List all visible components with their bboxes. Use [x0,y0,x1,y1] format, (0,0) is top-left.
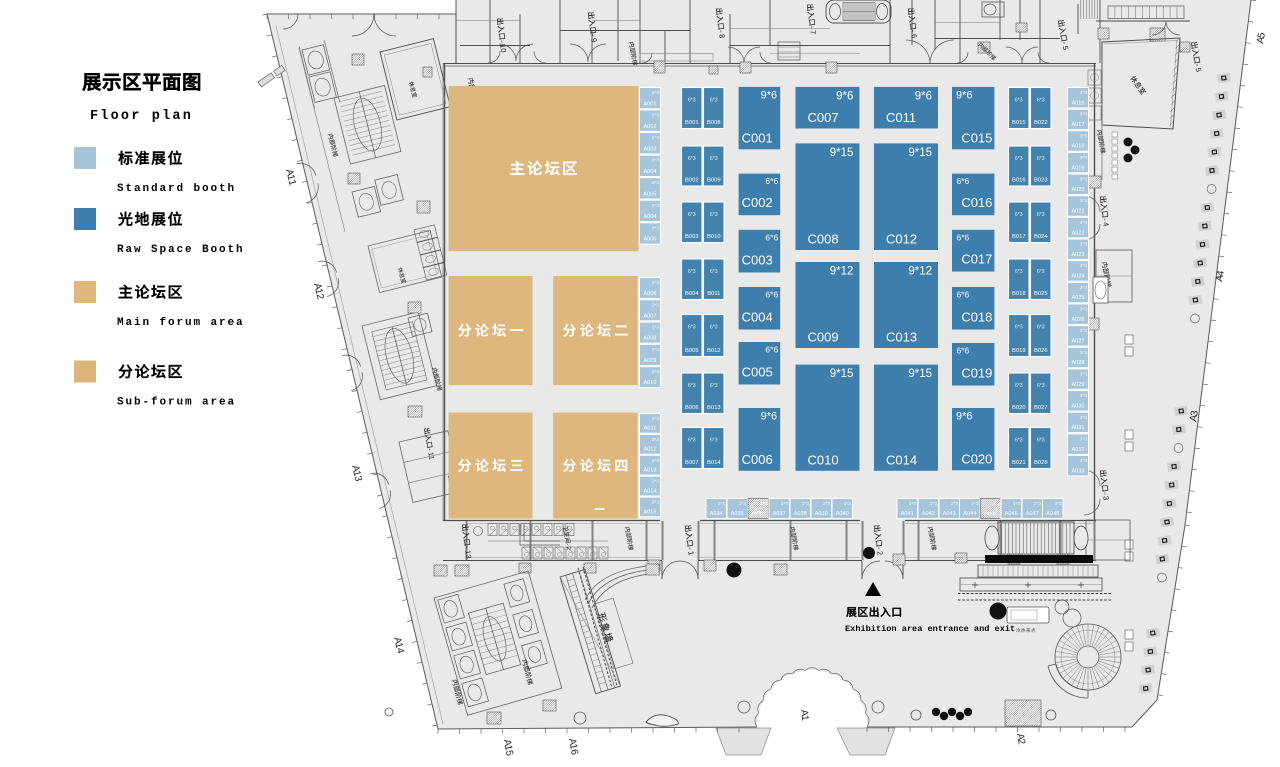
svg-text:B003: B003 [685,234,699,240]
svg-text:B015: B015 [1012,120,1026,126]
svg-text:6*3: 6*3 [1037,325,1045,331]
svg-text:3: 3 [352,475,364,483]
svg-text:4: 4 [1215,269,1227,277]
svg-text:B010: B010 [707,234,721,240]
svg-text:3*3: 3*3 [823,501,831,507]
svg-text:3*3: 3*3 [1080,133,1088,139]
svg-text:9*15: 9*15 [830,147,854,159]
svg-text:B005: B005 [685,348,699,354]
svg-text:3*3: 3*3 [652,347,660,353]
svg-text:6*3: 6*3 [710,383,718,389]
svg-text:C018: C018 [961,310,992,325]
svg-text:3*3: 3*3 [1080,155,1088,161]
svg-text:3*3: 3*3 [1080,328,1088,334]
svg-text:B011: B011 [707,291,720,297]
svg-text:3*3: 3*3 [1080,90,1088,96]
svg-text:3*3: 3*3 [652,158,660,164]
svg-text:3*3: 3*3 [1080,242,1088,248]
svg-text:A033: A033 [1071,468,1084,474]
svg-text:C002: C002 [742,195,773,210]
svg-text:9*6: 9*6 [836,90,853,102]
svg-text:B026: B026 [1034,348,1048,354]
svg-text:3*3: 3*3 [652,458,660,464]
svg-text:6*6: 6*6 [765,232,778,242]
svg-text:3*3: 3*3 [652,90,660,96]
svg-text:Main forum area: Main forum area [117,317,245,329]
svg-text:6*6: 6*6 [765,176,778,186]
svg-text:A042: A042 [922,511,935,517]
svg-text:1: 1 [799,714,811,721]
svg-text:3*3: 3*3 [652,437,660,443]
svg-text:3*3: 3*3 [1080,307,1088,313]
svg-text:A048: A048 [1046,511,1059,517]
svg-text:3*3: 3*3 [652,203,660,209]
svg-text:C017: C017 [961,252,992,267]
svg-text:6*3: 6*3 [710,438,718,444]
svg-text:A037: A037 [773,511,786,517]
svg-text:B014: B014 [707,460,721,466]
svg-text:A017: A017 [1071,122,1084,128]
svg-text:3*3: 3*3 [718,501,726,507]
svg-text:B002: B002 [685,178,699,184]
svg-text:A028: A028 [1071,360,1084,366]
svg-text:A008: A008 [643,336,656,342]
svg-text:B016: B016 [1012,178,1026,184]
svg-text:B001: B001 [685,120,699,126]
svg-text:C003: C003 [742,253,773,268]
svg-text:6*3: 6*3 [688,325,696,331]
svg-text:B027: B027 [1034,405,1048,411]
svg-text:B028: B028 [1034,460,1048,466]
svg-text:C014: C014 [886,452,917,467]
svg-text:A019: A019 [1071,165,1084,171]
svg-text:C009: C009 [808,330,839,345]
svg-text:C004: C004 [742,310,773,325]
svg-text:A013: A013 [643,468,656,474]
svg-text:A026: A026 [1071,317,1084,323]
svg-text:6*6: 6*6 [765,290,778,300]
svg-text:B024: B024 [1034,234,1048,240]
svg-text:A011: A011 [644,426,657,432]
svg-text:A009: A009 [643,358,656,364]
svg-text:B008: B008 [707,120,721,126]
svg-text:A030: A030 [1071,404,1084,410]
svg-text:C001: C001 [742,130,773,145]
svg-text:Floor plan: Floor plan [90,109,193,124]
svg-text:A029: A029 [1071,382,1084,388]
svg-text:B007: B007 [685,460,699,466]
svg-text:6*3: 6*3 [1037,212,1045,218]
svg-text:3*3: 3*3 [1080,458,1088,464]
svg-text:A012: A012 [643,447,656,453]
svg-text:3*3: 3*3 [652,113,660,119]
svg-text:3*3: 3*3 [1013,501,1021,507]
svg-text:A022: A022 [1071,230,1084,236]
svg-text:9*12: 9*12 [830,266,854,278]
svg-text:A021: A021 [1071,209,1084,215]
svg-text:3*3: 3*3 [781,501,789,507]
svg-text:6*3: 6*3 [1015,438,1023,444]
svg-text:A038: A038 [794,511,807,517]
svg-text:A005: A005 [643,192,656,198]
svg-text:6*3: 6*3 [1015,325,1023,331]
svg-text:2: 2 [1015,738,1027,746]
svg-text:3*3: 3*3 [1080,263,1088,269]
svg-text:1: 1 [286,179,298,187]
svg-text:9*6: 9*6 [915,90,932,102]
svg-text:A007: A007 [643,313,656,319]
svg-text:B022: B022 [1034,120,1048,126]
svg-text:A016: A016 [1071,100,1084,106]
svg-text:Exhibition area entrance and e: Exhibition area entrance and exit [845,624,1015,634]
svg-text:3*3: 3*3 [652,325,660,331]
svg-text:A018: A018 [1071,144,1084,150]
svg-text:6*3: 6*3 [1015,269,1023,275]
svg-text:A043: A043 [943,511,956,517]
svg-text:6*3: 6*3 [710,269,718,275]
svg-text:C013: C013 [886,330,917,345]
svg-text:C011: C011 [886,110,916,125]
svg-text:A027: A027 [1071,339,1084,345]
svg-text:3*3: 3*3 [971,501,979,507]
svg-text:3*3: 3*3 [652,180,660,186]
svg-text:6*3: 6*3 [710,98,718,104]
svg-text:B013: B013 [707,405,721,411]
svg-text:6*3: 6*3 [1015,156,1023,162]
svg-text:3*3: 3*3 [652,479,660,485]
svg-text:B021: B021 [1012,460,1026,466]
svg-text:6*6: 6*6 [957,232,970,242]
svg-text:C012: C012 [886,232,917,247]
svg-text:A024: A024 [1071,274,1084,280]
svg-text:6*3: 6*3 [688,212,696,218]
svg-text:3*3: 3*3 [909,501,917,507]
svg-text:B006: B006 [685,405,699,411]
svg-text:3*3: 3*3 [652,135,660,141]
svg-text:3*3: 3*3 [1080,436,1088,442]
svg-text:3*3: 3*3 [1080,177,1088,183]
svg-text:A046: A046 [1005,511,1018,517]
svg-text:C008: C008 [808,232,839,247]
svg-text:3*3: 3*3 [1080,220,1088,226]
svg-text:6*3: 6*3 [1037,438,1045,444]
svg-text:A040: A040 [836,511,849,517]
svg-text:6*6: 6*6 [957,176,970,186]
svg-text:B025: B025 [1034,291,1048,297]
svg-text:A039: A039 [815,511,828,517]
svg-text:A031: A031 [1071,425,1084,431]
svg-text:C010: C010 [808,452,839,467]
svg-text:B004: B004 [685,291,699,297]
svg-text:3*3: 3*3 [1080,350,1088,356]
svg-text:3*3: 3*3 [1080,371,1088,377]
svg-text:6*3: 6*3 [1037,156,1045,162]
svg-text:3*3: 3*3 [844,501,852,507]
svg-text:5: 5 [503,749,515,757]
svg-text:A002: A002 [643,124,656,130]
svg-text:A035: A035 [731,511,744,517]
svg-text:6*3: 6*3 [1037,269,1045,275]
svg-text:6*3: 6*3 [1015,383,1023,389]
svg-text:6*3: 6*3 [1037,383,1045,389]
svg-text:6*3: 6*3 [710,325,718,331]
svg-text:Standard booth: Standard booth [117,183,236,195]
svg-text:6*3: 6*3 [688,438,696,444]
svg-text:A004: A004 [643,169,656,175]
svg-text:A045: A045 [984,511,997,517]
svg-text:A004: A004 [643,214,656,220]
svg-text:3*3: 3*3 [951,501,959,507]
svg-text:B017: B017 [1012,234,1026,240]
svg-text:6*3: 6*3 [688,98,696,104]
svg-text:A032: A032 [1071,447,1084,453]
svg-text:6*3: 6*3 [1015,212,1023,218]
svg-text:6*3: 6*3 [688,383,696,389]
svg-text:3*3: 3*3 [802,501,810,507]
svg-text:A041: A041 [901,511,914,517]
svg-text:3*3: 3*3 [930,501,938,507]
svg-text:B023: B023 [1034,178,1048,184]
svg-text:B018: B018 [1012,291,1026,297]
svg-text:A014: A014 [643,488,656,494]
svg-text:6*3: 6*3 [710,212,718,218]
svg-text:B009: B009 [707,178,721,184]
svg-text:3*3: 3*3 [760,501,768,507]
svg-text:B012: B012 [707,348,721,354]
svg-text:9*15: 9*15 [908,147,932,159]
svg-text:C005: C005 [742,365,773,380]
svg-text:9*6: 9*6 [761,411,778,423]
svg-text:3*3: 3*3 [652,500,660,506]
svg-text:A020: A020 [1071,187,1084,193]
svg-text:6*3: 6*3 [1015,98,1023,104]
svg-text:9*6: 9*6 [956,411,973,423]
svg-text:A003: A003 [643,146,656,152]
svg-text:6*6: 6*6 [957,346,970,356]
svg-text:A036: A036 [752,511,765,517]
svg-text:C007: C007 [808,110,839,125]
svg-text:6*3: 6*3 [710,156,718,162]
svg-text:C006: C006 [742,452,773,467]
svg-text:3*3: 3*3 [1080,285,1088,291]
svg-text:A001: A001 [643,101,656,107]
svg-text:C016: C016 [961,195,992,210]
svg-text:A047: A047 [1026,511,1039,517]
svg-text:9*12: 9*12 [908,266,932,278]
svg-text:3*3: 3*3 [1034,501,1042,507]
svg-text:2: 2 [314,293,326,301]
svg-text:3*3: 3*3 [652,369,660,375]
svg-text:3*3: 3*3 [1080,112,1088,118]
svg-text:6*3: 6*3 [688,156,696,162]
svg-text:3*3: 3*3 [1080,393,1088,399]
svg-text:6: 6 [568,748,580,756]
svg-text:3*3: 3*3 [1080,198,1088,204]
svg-text:A005: A005 [643,237,656,243]
svg-text:6*3: 6*3 [1037,98,1045,104]
svg-text:6*6: 6*6 [765,345,778,355]
svg-text:3*3: 3*3 [652,416,660,422]
svg-text:9*15: 9*15 [908,368,932,380]
svg-text:3*3: 3*3 [739,501,747,507]
svg-text:C015: C015 [961,130,992,145]
svg-text:C020: C020 [961,451,992,466]
svg-text:9*6: 9*6 [956,89,973,101]
svg-text:A006: A006 [643,291,656,297]
svg-text:3*3: 3*3 [992,501,1000,507]
svg-text:3*3: 3*3 [1080,415,1088,421]
svg-text:3*3: 3*3 [652,280,660,286]
svg-text:6*3: 6*3 [688,269,696,275]
svg-text:Sub-forum area: Sub-forum area [117,397,236,409]
svg-text:A023: A023 [1071,252,1084,258]
svg-text:Raw Space Booth: Raw Space Booth [117,244,245,256]
svg-text:6*6: 6*6 [957,290,970,300]
svg-text:A015: A015 [643,509,656,515]
svg-text:3*3: 3*3 [1054,501,1062,507]
svg-text:9*6: 9*6 [761,89,778,101]
svg-text:3*3: 3*3 [652,225,660,231]
svg-text:A034: A034 [710,511,723,517]
svg-text:B020: B020 [1012,405,1026,411]
svg-text:A044: A044 [963,511,976,517]
svg-text:3*3: 3*3 [652,302,660,308]
svg-text:A010: A010 [643,380,656,386]
svg-text:C019: C019 [961,366,992,381]
svg-text:5: 5 [1256,31,1268,39]
svg-text:B019: B019 [1012,348,1026,354]
svg-text:4: 4 [394,647,406,655]
svg-text:9*15: 9*15 [830,368,854,380]
svg-text:A025: A025 [1071,295,1084,301]
